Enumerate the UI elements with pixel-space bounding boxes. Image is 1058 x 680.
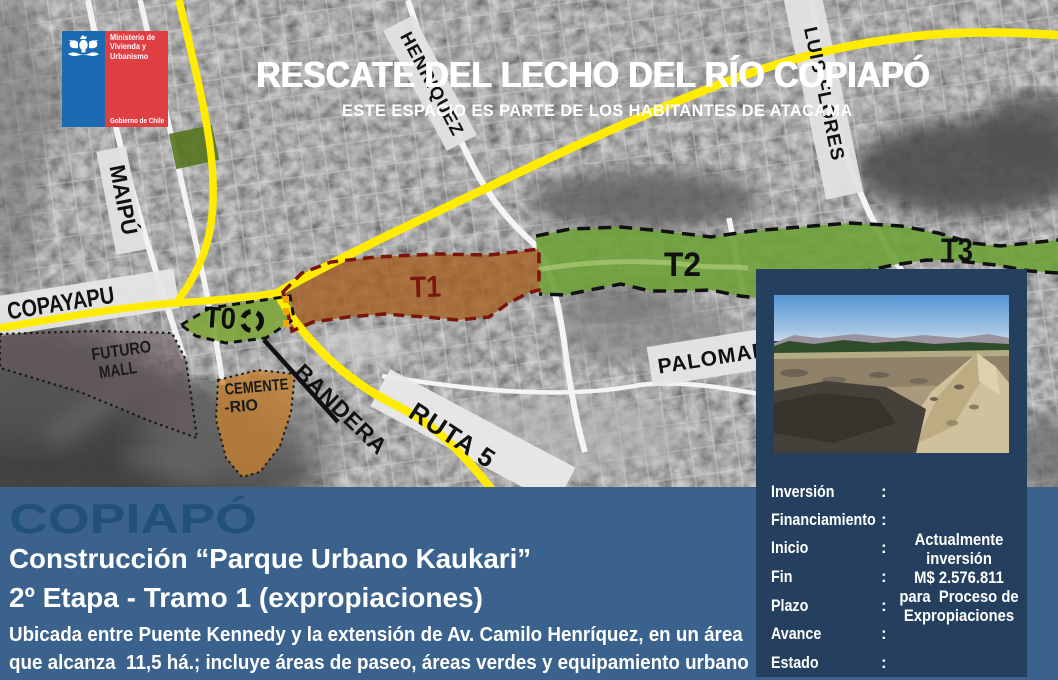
svg-text:T2: T2 bbox=[664, 246, 701, 284]
svg-text:T0: T0 bbox=[203, 301, 237, 336]
svg-text:T3: T3 bbox=[941, 232, 973, 268]
svg-text:-RIO: -RIO bbox=[224, 397, 259, 417]
svg-text:T1: T1 bbox=[410, 270, 442, 304]
